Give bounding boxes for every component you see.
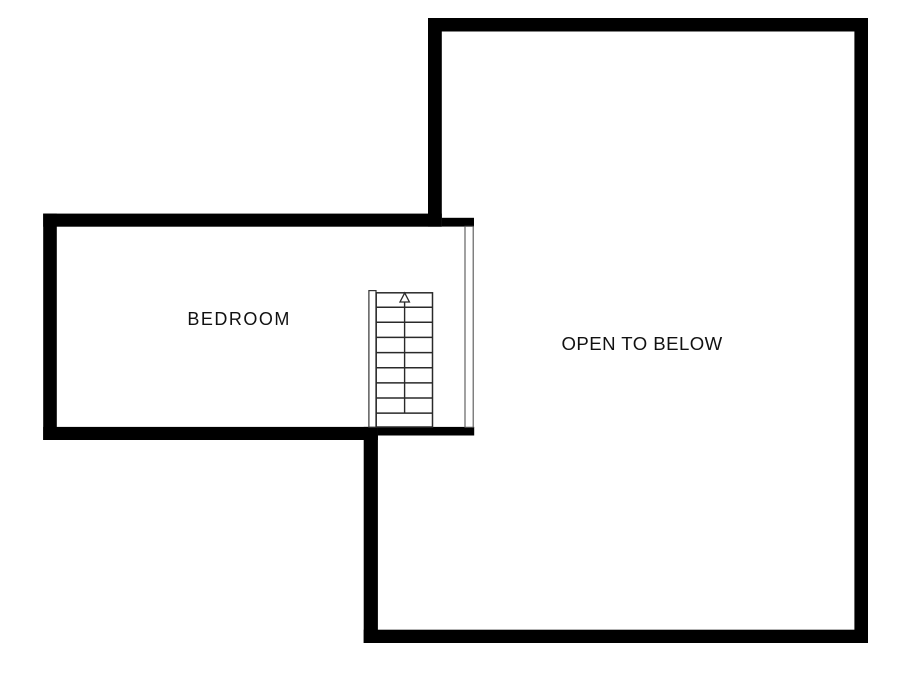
svg-text:OPEN TO BELOW: OPEN TO BELOW: [562, 333, 723, 354]
svg-text:BEDROOM: BEDROOM: [187, 309, 291, 329]
